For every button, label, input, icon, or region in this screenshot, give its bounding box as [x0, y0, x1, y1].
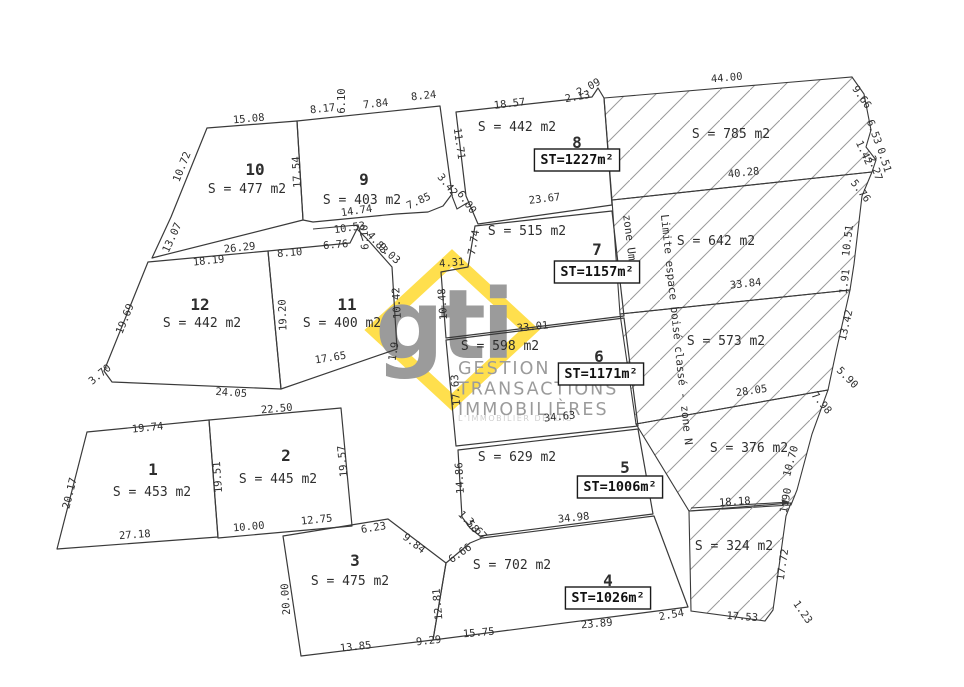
wooded-zone-2-area-label: S = 642 m2 [677, 234, 755, 249]
dimension-label: 19.51 [211, 461, 225, 493]
lot-8-total-area: ST=1227m² [540, 152, 613, 168]
lot-7-area-label: S = 515 m2 [488, 224, 566, 239]
dimension-label: 19.20 [276, 299, 289, 331]
dimension-label: 17.53 [726, 610, 758, 624]
lot-8-total-area-box: ST=1227m² [534, 149, 619, 171]
lot-4-total-area: ST=1026m² [571, 590, 644, 606]
lot-5-total-area: ST=1006m² [583, 479, 656, 495]
dimension-label: 34.98 [557, 510, 590, 525]
lot-6-total-area: ST=1171m² [564, 366, 637, 382]
dimension-label: 4.31 [439, 256, 465, 270]
dimension-label: 18.18 [719, 495, 751, 509]
dimension-label: 23.89 [580, 617, 613, 632]
lot-5-number: 5 [620, 458, 630, 477]
dimension-label: 9.29 [415, 634, 441, 649]
survey-plan-svg: gtiGESTIONTRANSACTIONSIMMOBILIÈRESL'IMMO… [0, 0, 964, 687]
dimension-label: 7.84 [362, 97, 388, 112]
dimension-label: 10.48 [436, 288, 450, 320]
lot-10-area-label: S = 477 m2 [208, 182, 286, 197]
lot-1-number: 1 [148, 460, 158, 479]
lot-2-area-label: S = 445 m2 [239, 472, 317, 487]
lot-4-area-label: S = 702 m2 [473, 558, 551, 573]
dimension-label: 8.17 [309, 102, 335, 117]
dimension-label: 6.10 [336, 88, 348, 113]
dimension-label: 8.24 [410, 89, 436, 104]
dimension-label: 17.63 [449, 374, 463, 406]
lot-4-fill [433, 516, 688, 640]
lot-9-area-label: S = 403 m2 [323, 193, 401, 208]
dimension-label: 24.05 [215, 386, 247, 400]
lot-10-number: 10 [245, 160, 264, 179]
lot-2-number: 2 [281, 446, 291, 465]
wooded-zone-1-area-label: S = 785 m2 [692, 127, 770, 142]
cadastral-plan: gtiGESTIONTRANSACTIONSIMMOBILIÈRESL'IMMO… [0, 0, 964, 687]
lot-7-total-area-box: ST=1157m² [554, 261, 639, 283]
dimension-label: 44.00 [710, 71, 743, 86]
dimension-label: 14.86 [453, 462, 467, 494]
dimension-label: 10.42 [390, 287, 404, 319]
dimension-label: 17.54 [290, 156, 304, 188]
lot-4-total-area-box: ST=1026m² [565, 587, 650, 609]
wooded-zone-5-area-label: S = 324 m2 [695, 539, 773, 554]
lot-3-area-label: S = 475 m2 [311, 574, 389, 589]
wooded-zone-5 [689, 503, 791, 621]
dimension-label: 5.90 [834, 365, 860, 391]
lot-9-number: 9 [359, 170, 369, 189]
lot-6-area-label: S = 598 m2 [461, 339, 539, 354]
lot-7-total-area: ST=1157m² [560, 264, 633, 280]
dimension-label: 19.57 [336, 445, 351, 478]
lot-11-area-label: S = 400 m2 [303, 316, 381, 331]
lot-8-area-label: S = 442 m2 [478, 120, 556, 135]
dimension-label: 13.85 [339, 639, 372, 654]
dimension-label: 27.18 [119, 528, 151, 542]
lot-1-area-label: S = 453 m2 [113, 485, 191, 500]
dimension-label: 15.75 [462, 626, 495, 641]
wooded-zone-4-area-label: S = 376 m2 [710, 441, 788, 456]
lot-5-area-label: S = 629 m2 [478, 450, 556, 465]
wooded-zone-3-area-label: S = 573 m2 [687, 334, 765, 349]
lot-5-total-area-box: ST=1006m² [577, 476, 662, 498]
lot-7-number: 7 [592, 240, 602, 259]
dimension-label: 20.00 [279, 583, 293, 615]
lot-12-area-label: S = 442 m2 [163, 316, 241, 331]
dimension-label: 1.23 [790, 598, 814, 626]
lot-12-number: 12 [190, 295, 209, 314]
logo-line-1: GESTION [458, 359, 550, 379]
dimension-label: 6.76 [323, 238, 349, 252]
lot-3-number: 3 [350, 551, 360, 570]
dimension-label: 8.10 [277, 246, 303, 260]
lot-6-total-area-box: ST=1171m² [558, 363, 643, 385]
lot-11-number: 11 [337, 295, 356, 314]
